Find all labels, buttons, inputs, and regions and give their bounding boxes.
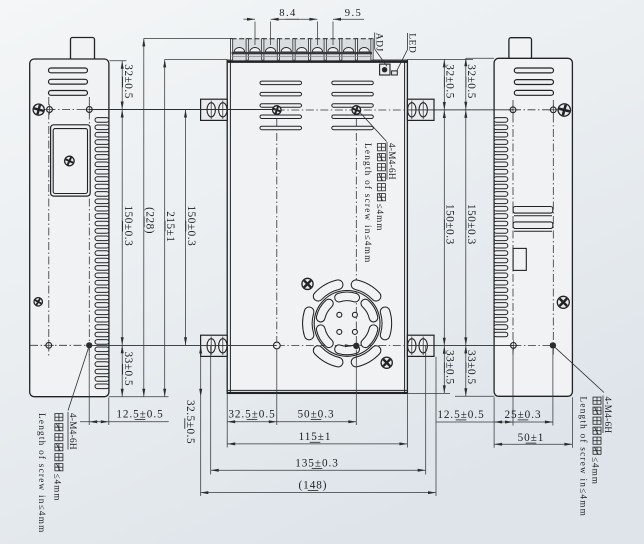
svg-text:Length of screw in≤4mm: Length of screw in≤4mm (363, 143, 373, 264)
svg-text:150±0.3: 150±0.3 (444, 204, 456, 245)
svg-text:4-M4-6H: 4-M4-6H (387, 143, 397, 180)
svg-text:33±0.5: 33±0.5 (465, 350, 477, 385)
svg-text:32±0.5: 32±0.5 (444, 64, 456, 99)
svg-text:135±0.3: 135±0.3 (295, 457, 339, 469)
svg-text:150±0.3: 150±0.3 (122, 206, 134, 247)
svg-text:ADJ: ADJ (374, 33, 385, 52)
svg-text:33±0.5: 33±0.5 (444, 350, 456, 385)
svg-text:50±1: 50±1 (518, 432, 545, 444)
svg-text:25±0.3: 25±0.3 (504, 409, 541, 421)
svg-text:Length of screw in≤4mm: Length of screw in≤4mm (578, 397, 588, 518)
svg-text:50±0.3: 50±0.3 (297, 409, 334, 421)
svg-text:150±0.3: 150±0.3 (185, 206, 197, 247)
svg-text:≤4mm: ≤4mm (591, 457, 601, 485)
svg-text:32.5±0.5: 32.5±0.5 (184, 400, 196, 444)
svg-text:4-M4-6H: 4-M4-6H (68, 413, 78, 450)
svg-text:150±0.3: 150±0.3 (465, 204, 477, 245)
svg-text:LED: LED (407, 33, 418, 53)
svg-text:215±1: 215±1 (164, 211, 176, 242)
svg-text:Length of screw in≤4mm: Length of screw in≤4mm (37, 413, 47, 534)
svg-text:32±0.5: 32±0.5 (465, 64, 477, 99)
svg-text:32±0.5: 32±0.5 (122, 64, 134, 99)
svg-text:(148): (148) (299, 479, 328, 491)
svg-text:4-M4-6H: 4-M4-6H (603, 397, 613, 434)
svg-text:12.5±0.5: 12.5±0.5 (437, 409, 484, 421)
svg-text:≤4mm: ≤4mm (53, 474, 63, 502)
svg-text:9.5: 9.5 (345, 8, 362, 19)
svg-text:12.5±0.5: 12.5±0.5 (116, 409, 163, 421)
svg-text:33±0.5: 33±0.5 (122, 352, 134, 387)
svg-text:32.5±0.5: 32.5±0.5 (228, 409, 275, 421)
svg-text:≤4mm: ≤4mm (375, 204, 385, 232)
svg-text:8.4: 8.4 (279, 8, 296, 19)
svg-text:(228): (228) (143, 207, 155, 234)
svg-text:115±1: 115±1 (299, 431, 332, 443)
